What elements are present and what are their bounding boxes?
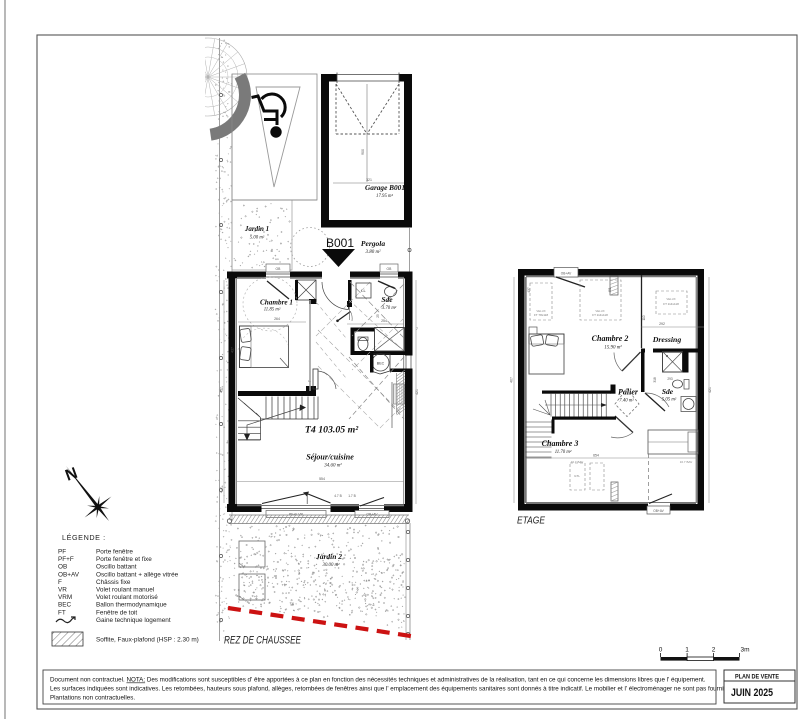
svg-text:Châssis fixe: Châssis fixe — [96, 579, 131, 586]
svg-text:264: 264 — [274, 317, 280, 321]
svg-text:Chambre 3: Chambre 3 — [542, 439, 579, 448]
svg-text:T4 103.05 m²: T4 103.05 m² — [305, 425, 359, 436]
svg-text:PF: PF — [58, 549, 66, 556]
svg-text:GTL: GTL — [574, 474, 580, 478]
svg-text:437: 437 — [231, 347, 235, 353]
svg-text:11.70 m²: 11.70 m² — [555, 449, 572, 455]
svg-text:OB: OB — [387, 267, 393, 271]
svg-text:554: 554 — [319, 477, 325, 481]
svg-text:VELUX: VELUX — [536, 309, 545, 313]
svg-text:FT 114x118: FT 114x118 — [592, 313, 608, 317]
svg-text:F: F — [58, 579, 62, 586]
svg-text:VELUX: VELUX — [666, 297, 675, 301]
svg-text:BEC: BEC — [58, 602, 72, 609]
svg-text:Pergola: Pergola — [361, 239, 385, 248]
svg-text:Gaine technique logement: Gaine technique logement — [96, 617, 171, 624]
svg-text:VRM: VRM — [58, 594, 72, 601]
svg-text:Porte fenêtre et fixe: Porte fenêtre et fixe — [96, 556, 152, 563]
svg-text:Volet roulant manuel: Volet roulant manuel — [96, 587, 154, 594]
svg-text:Dressing: Dressing — [652, 335, 682, 344]
svg-text:Sde: Sde — [381, 295, 393, 304]
svg-text:7.40 m²: 7.40 m² — [619, 398, 634, 404]
svg-text:FT: FT — [58, 609, 66, 616]
svg-text:VR: VR — [58, 587, 67, 594]
svg-text:Document non contractuel. NOTA: Document non contractuel. NOTA: Des modi… — [50, 677, 706, 684]
svg-text:4.7 B: 4.7 B — [334, 494, 341, 498]
svg-text:7: 7 — [416, 327, 418, 331]
svg-text:OB+AV: OB+AV — [58, 571, 80, 578]
svg-text:421: 421 — [708, 387, 712, 393]
svg-text:5.05 m²: 5.05 m² — [662, 397, 677, 403]
svg-text:Oscillo battant: Oscillo battant — [96, 564, 137, 571]
svg-text:Ballon thermodynamique: Ballon thermodynamique — [96, 602, 167, 609]
svg-text:ETAGE: ETAGE — [517, 515, 546, 527]
svg-text:3.70 m²: 3.70 m² — [382, 305, 397, 311]
svg-text:Séjour/cuisine: Séjour/cuisine — [306, 452, 354, 461]
svg-text:1.7 B: 1.7 B — [348, 494, 355, 498]
svg-text:B001: B001 — [326, 236, 354, 250]
svg-text:Sde: Sde — [662, 387, 674, 396]
svg-text:Porte fenêtre: Porte fenêtre — [96, 549, 133, 556]
svg-text:Fenêtre de toit: Fenêtre de toit — [96, 609, 137, 616]
svg-text:1: 1 — [685, 647, 689, 654]
svg-text:30.00 m²: 30.00 m² — [323, 562, 340, 568]
svg-text:11.85 m²: 11.85 m² — [264, 307, 281, 313]
svg-text:2: 2 — [712, 647, 716, 654]
svg-text:292: 292 — [659, 322, 665, 326]
svg-text:Volet roulant motorisé: Volet roulant motorisé — [96, 594, 158, 601]
svg-text:15.90 m²: 15.90 m² — [604, 345, 622, 351]
svg-text:BEC: BEC — [377, 362, 385, 366]
svg-text:457: 457 — [220, 387, 224, 393]
svg-text:OB+AV: OB+AV — [366, 513, 378, 517]
svg-text:OB+AV: OB+AV — [653, 509, 664, 513]
svg-text:17.95 m²: 17.95 m² — [376, 193, 393, 199]
svg-text:OB: OB — [58, 564, 67, 571]
svg-text:407: 407 — [510, 377, 514, 383]
svg-text:Palier: Palier — [618, 388, 639, 397]
svg-text:Soffite, Faux-plafond (HSP : 2: Soffite, Faux-plafond (HSP : 2.30 m) — [96, 637, 199, 644]
svg-text:Plantations non contractuelles: Plantations non contractuelles. — [50, 695, 135, 702]
svg-text:25: 25 — [376, 314, 380, 318]
svg-text:421: 421 — [415, 389, 419, 395]
svg-text:Chambre 2: Chambre 2 — [592, 334, 629, 343]
svg-text:Chambre 1: Chambre 1 — [260, 299, 293, 307]
svg-text:654: 654 — [593, 454, 599, 458]
svg-text:0: 0 — [659, 647, 663, 654]
svg-text:254: 254 — [381, 319, 387, 323]
svg-text:PLAN DE VENTE: PLAN DE VENTE — [735, 674, 779, 681]
svg-text:OB+AV: OB+AV — [561, 272, 572, 276]
svg-text:437: 437 — [527, 287, 531, 293]
svg-text:JUIN 2025: JUIN 2025 — [731, 687, 773, 699]
svg-text:Jardin 2: Jardin 2 — [315, 552, 342, 561]
svg-text:3m: 3m — [741, 647, 750, 654]
svg-text:5.00 m²: 5.00 m² — [250, 235, 265, 241]
svg-text:Jardin 1: Jardin 1 — [244, 225, 269, 233]
svg-text:900: 900 — [361, 149, 365, 155]
svg-text:OB: OB — [276, 267, 282, 271]
svg-text:Les surfaces indiquées sont in: Les surfaces indiquées sont indicatives.… — [50, 686, 726, 693]
svg-text:LL: LL — [361, 288, 366, 293]
svg-text:16.7 BAV: 16.7 BAV — [571, 460, 583, 464]
svg-text:293: 293 — [667, 377, 673, 381]
svg-text:321: 321 — [366, 178, 372, 182]
svg-text:PF+F: PF+F — [58, 556, 74, 563]
svg-text:16.7 BAV: 16.7 BAV — [680, 460, 692, 464]
svg-text:318: 318 — [653, 377, 657, 383]
svg-text:Oscillo battant + allège vitré: Oscillo battant + allège vitrée — [96, 571, 179, 578]
svg-text:LÉGENDE :: LÉGENDE : — [62, 533, 106, 542]
svg-text:3.80 m²: 3.80 m² — [365, 249, 381, 255]
svg-text:FT 114x118: FT 114x118 — [663, 302, 679, 306]
svg-text:110: 110 — [642, 315, 646, 320]
svg-text:34.60 m²: 34.60 m² — [324, 462, 342, 468]
svg-text:451: 451 — [608, 287, 612, 293]
svg-text:REZ DE CHAUSSEE: REZ DE CHAUSSEE — [224, 635, 301, 647]
svg-text:VELUX: VELUX — [595, 309, 604, 313]
svg-text:Garage B001: Garage B001 — [365, 183, 405, 192]
svg-text:FT 78x118: FT 78x118 — [534, 313, 548, 317]
